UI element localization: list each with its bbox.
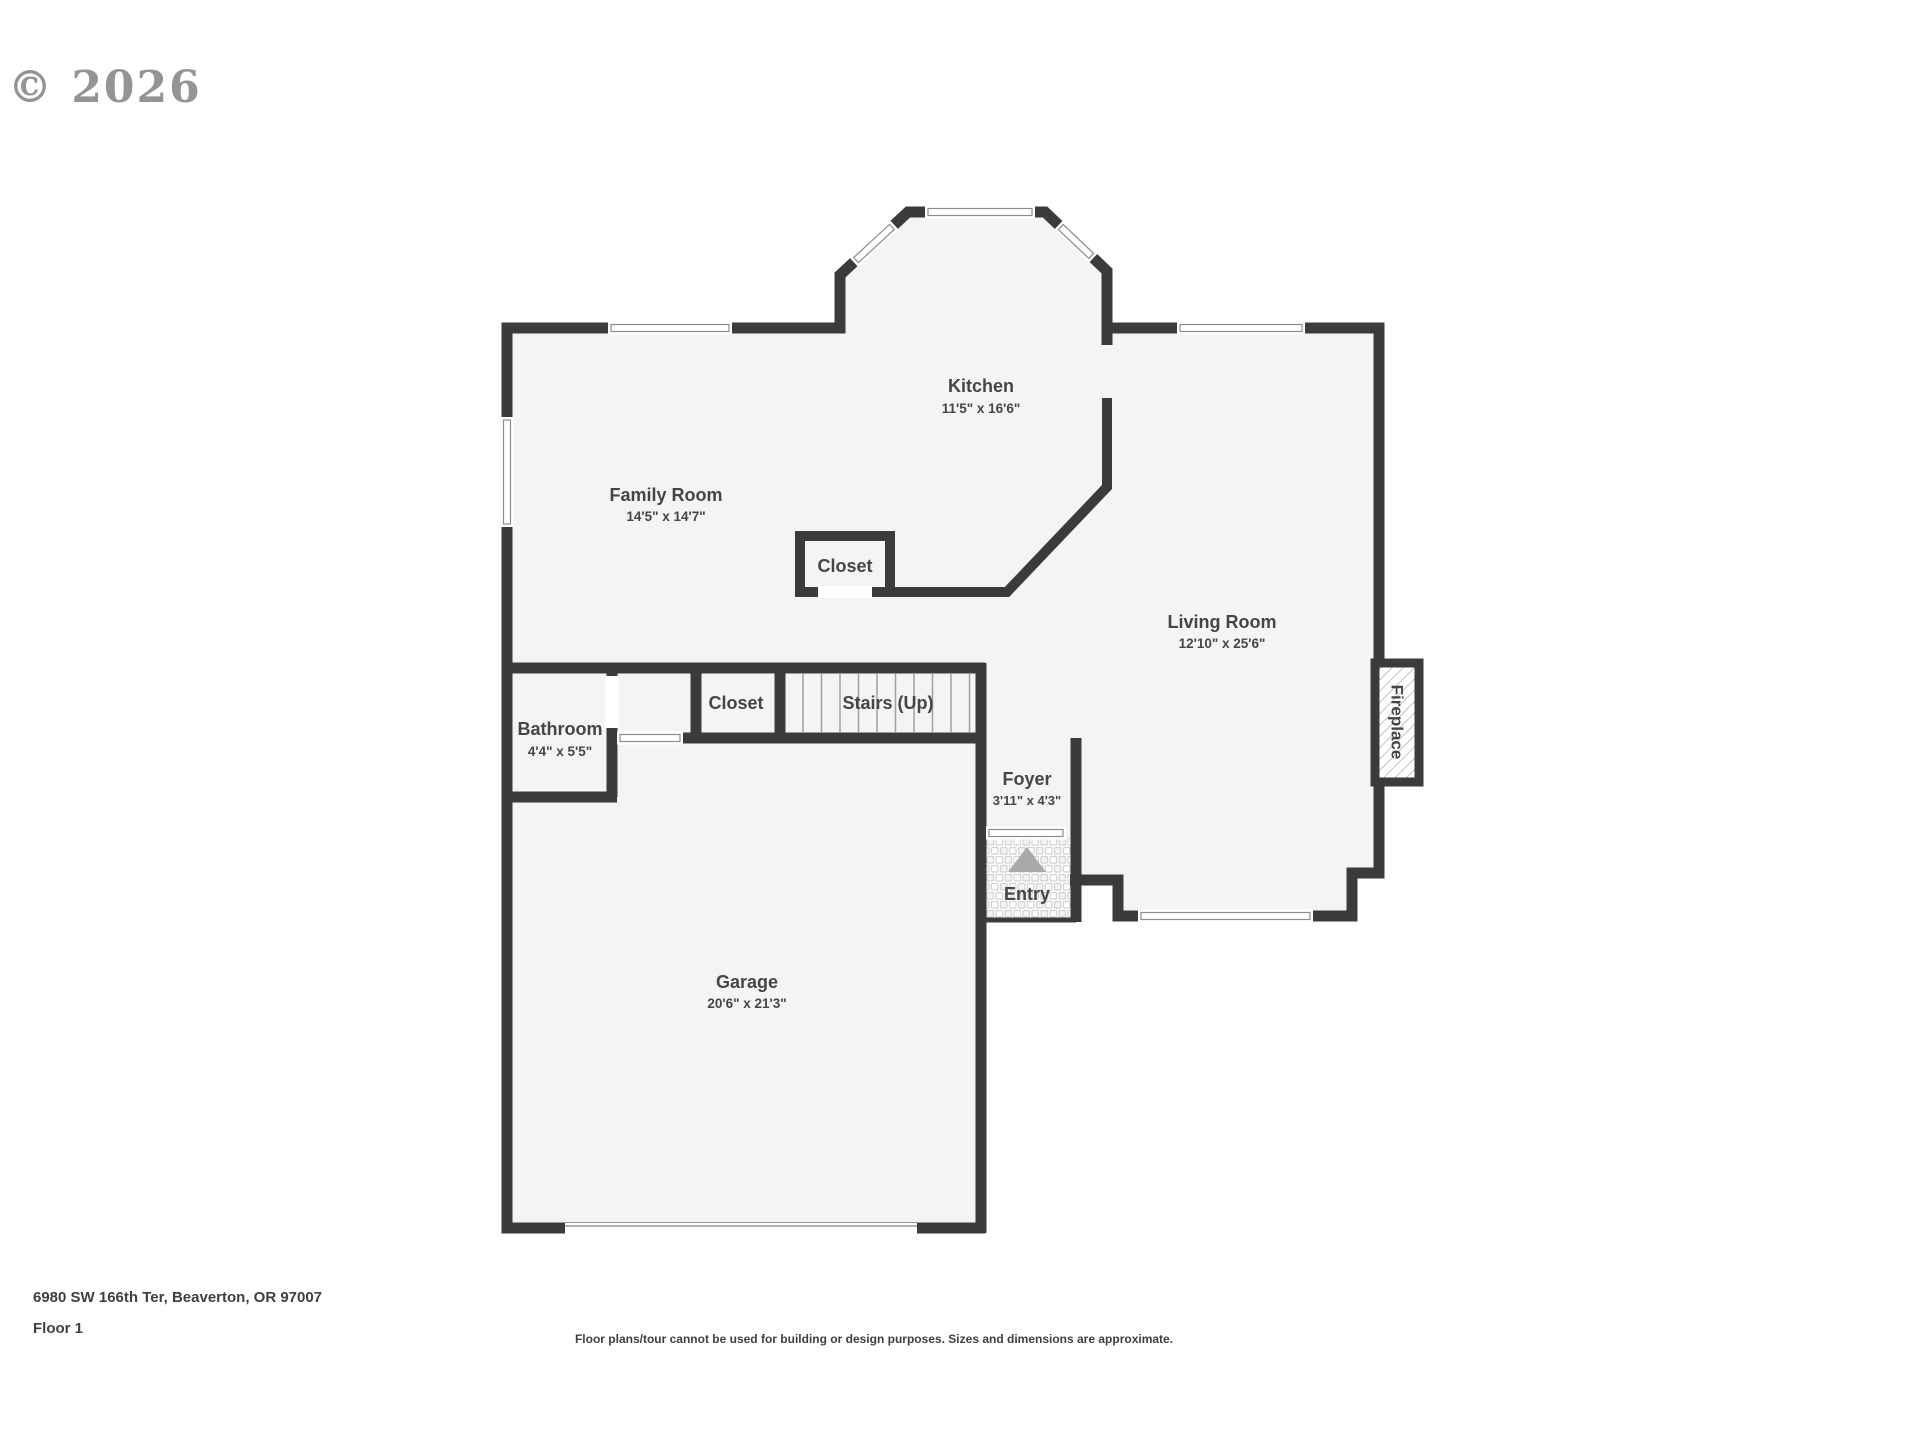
floor-plan-svg: Fireplace Kitchen 11'5" x 16'6" Family R…: [0, 0, 1920, 1440]
kitchen-closet-label: Closet: [817, 556, 872, 576]
bay-top-window: [925, 206, 1035, 219]
exterior-notch-left: [1076, 885, 1118, 925]
entry-porch: [983, 838, 1076, 920]
bathroom-dims: 4'4" x 5'5": [528, 744, 592, 759]
front-door: [986, 827, 1066, 840]
living-room-bottom-window: [1138, 910, 1313, 923]
floor-areas: [507, 212, 1387, 1228]
bathroom-door-opening: [605, 676, 619, 728]
floor-plan-page: © 2026: [0, 0, 1920, 1440]
stairs-label: Stairs (Up): [842, 693, 933, 713]
floor-number-label: Floor 1: [33, 1320, 83, 1337]
family-room-left-window: [501, 417, 514, 527]
kitchen-label: Kitchen: [948, 376, 1014, 396]
upper-floor-area: [507, 212, 1379, 738]
disclaimer-text: Floor plans/tour cannot be used for buil…: [575, 1332, 1173, 1346]
family-room-label: Family Room: [609, 485, 722, 505]
hall-closet-label: Closet: [708, 693, 763, 713]
kitchen-dims: 11'5" x 16'6": [942, 401, 1021, 416]
copyright-watermark: © 2026: [8, 62, 202, 113]
entry-label: Entry: [1004, 884, 1050, 904]
garage-door: [565, 1223, 917, 1239]
fireplace-label: Fireplace: [1388, 685, 1407, 760]
living-room-dims: 12'10" x 25'6": [1179, 636, 1266, 651]
garage-label: Garage: [716, 972, 778, 992]
exterior-notch-right: [1357, 878, 1387, 925]
pantry-door-opening: [818, 586, 872, 598]
foyer-label: Foyer: [1002, 769, 1051, 789]
family-room-top-window: [608, 322, 732, 335]
property-address: 6980 SW 166th Ter, Beaverton, OR 97007: [33, 1289, 322, 1306]
foyer-dims: 3'11" x 4'3": [993, 793, 1061, 808]
fireplace: Fireplace: [1375, 663, 1419, 782]
living-room-label: Living Room: [1168, 612, 1277, 632]
bathroom-label: Bathroom: [518, 719, 603, 739]
garage-dims: 20'6" x 21'3": [707, 996, 786, 1011]
family-room-dims: 14'5" x 14'7": [626, 509, 705, 524]
living-room-top-window: [1177, 322, 1305, 335]
garage-hall-door: [617, 732, 683, 745]
